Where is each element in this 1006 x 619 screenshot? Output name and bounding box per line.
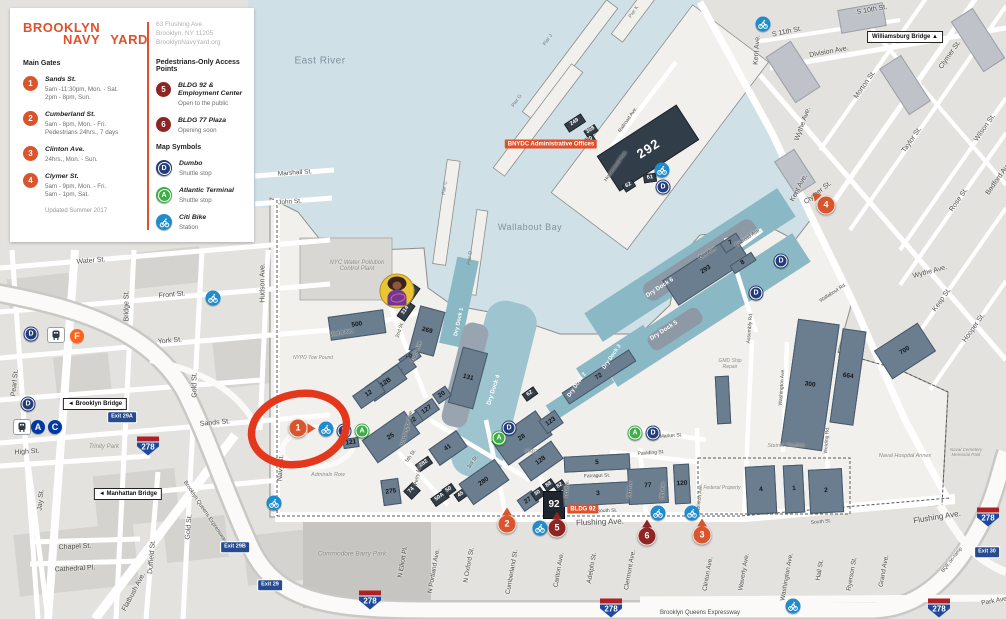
dumbo-shuttle-icon: D bbox=[337, 424, 352, 439]
area-label: GMD Ship Repair bbox=[718, 358, 741, 370]
gate-marker-6: 6 bbox=[638, 527, 657, 546]
gate-1-hours-2: 2pm - 8pm, Sun. bbox=[45, 94, 91, 101]
citibike-icon bbox=[267, 496, 282, 511]
gate-4-badge: 4 bbox=[23, 173, 38, 188]
access-5-name2: Employment Center bbox=[178, 90, 242, 97]
area-label: Steiner Studios bbox=[767, 443, 804, 449]
building-1: 1 bbox=[783, 465, 805, 514]
citibike-icon bbox=[206, 291, 221, 306]
gate-1-hours-1: 5am -11:30pm, Mon. - Sat. bbox=[45, 86, 118, 93]
address-line2: Brooklyn, NY 11205 bbox=[156, 29, 250, 38]
symbol-row-dumbo: D Dumbo Shuttle stop bbox=[156, 160, 250, 178]
building-label-74: 74 bbox=[408, 487, 416, 495]
area-label: GMC bbox=[525, 449, 538, 455]
water-label: Wallabout Bay bbox=[498, 222, 562, 232]
exit-sign: Exit 29 bbox=[257, 579, 283, 591]
building-label-249: 249 bbox=[570, 118, 581, 128]
building-label-275: 275 bbox=[385, 488, 397, 496]
dumbo-shuttle-icon: D bbox=[156, 160, 172, 176]
street-label: Bridge St. bbox=[124, 291, 131, 322]
access-5-badge: 5 bbox=[156, 82, 171, 97]
building-label-280: 280 bbox=[478, 476, 491, 488]
building-label-12: 12 bbox=[364, 389, 374, 398]
water-label: East River bbox=[294, 56, 345, 67]
exit-sign: Exit 29B bbox=[220, 541, 250, 553]
gate-3-hours-1: 24hrs., Mon. - Sun. bbox=[45, 156, 98, 163]
logo-line3: YARD bbox=[110, 34, 148, 46]
bridge-sign: Williamsburg Bridge ▲ bbox=[867, 31, 943, 43]
building-4: 4 bbox=[745, 465, 777, 515]
main-gates-title: Main Gates bbox=[23, 60, 141, 67]
access-6-desc: Opening soon bbox=[178, 127, 226, 135]
symbol-citibike-name: Citi Bike bbox=[179, 214, 206, 222]
building-label-293: 293 bbox=[700, 264, 713, 275]
ped-access-row-6: 6 BLDG 77 Plaza Opening soon bbox=[156, 117, 250, 135]
area-label: Naval Hospital Annex bbox=[879, 453, 931, 459]
building-label-292: 292 bbox=[634, 136, 662, 160]
building-label-30: 30 bbox=[534, 490, 542, 498]
building-120: 120 bbox=[673, 464, 691, 505]
building-label-8: 8 bbox=[740, 259, 747, 266]
building-3: 3 bbox=[562, 481, 633, 507]
building-92: 92 bbox=[543, 491, 565, 519]
atlantic-terminal-icon: A bbox=[628, 426, 643, 441]
symbol-atlantic-name: Atlantic Terminal bbox=[179, 187, 234, 195]
symbol-dumbo-name: Dumbo bbox=[179, 160, 212, 168]
bnydc-offices-callout: BNYDC Administrative Offices bbox=[505, 140, 597, 149]
street-label: South St. bbox=[597, 508, 618, 515]
building-label-27: 27 bbox=[523, 496, 533, 505]
building-275: 275 bbox=[380, 478, 401, 506]
area-label: Admirals Row bbox=[311, 472, 345, 478]
gate-legend-row-2: 2 Cumberland St. 5am - 8pm, Mon. - Fri.P… bbox=[23, 111, 141, 137]
citibike-icon bbox=[685, 506, 700, 521]
building-label-50: 50 bbox=[445, 486, 453, 494]
access-6-badge: 6 bbox=[156, 117, 171, 132]
gate-3-badge: 3 bbox=[23, 146, 38, 161]
legend-divider bbox=[147, 22, 149, 230]
website: BrooklynNavyYard.org bbox=[156, 38, 250, 47]
train-station-icon bbox=[13, 419, 31, 435]
building-label-120: 120 bbox=[676, 480, 687, 487]
gate-marker-1: 1 bbox=[289, 419, 308, 438]
citibike-icon bbox=[533, 521, 548, 536]
building-label-62: 62 bbox=[526, 390, 534, 398]
building-label-127: 127 bbox=[421, 404, 434, 416]
city-block bbox=[715, 376, 731, 425]
dumbo-shuttle-icon: D bbox=[774, 254, 789, 269]
gate-marker-2: 2 bbox=[498, 515, 517, 534]
citibike-icon bbox=[756, 17, 771, 32]
gate-3-name: Clinton Ave. bbox=[45, 146, 98, 154]
exit-sign: Exit 29A bbox=[107, 411, 137, 423]
street-label: Brooklyn Queens Expressway bbox=[660, 610, 740, 616]
street-label: Gold St. bbox=[192, 372, 199, 397]
badge-face bbox=[393, 282, 402, 290]
building-label-700: 700 bbox=[899, 345, 912, 356]
gate-4-name: Clymer St. bbox=[45, 173, 106, 181]
subway-a-icon: A bbox=[31, 420, 45, 434]
access-5-desc: Open to the public bbox=[178, 100, 242, 108]
dumbo-shuttle-icon: D bbox=[749, 286, 764, 301]
citibike-icon bbox=[786, 599, 801, 614]
area-label: NYC Water Pollution Control Plant bbox=[330, 260, 385, 272]
building-label-77: 77 bbox=[644, 483, 652, 490]
area-label: NYPD Tow Pound bbox=[293, 355, 333, 361]
pedestrian-access-title: Pedestrians-Only Access Points bbox=[156, 59, 250, 73]
building-label-5: 5 bbox=[595, 460, 599, 467]
brooklyn-navy-yard-logo: BROOKLYNNAVY YARD bbox=[23, 20, 141, 46]
building-label-72: 72 bbox=[594, 372, 604, 381]
bridge-sign: ◄ Brooklyn Bridge bbox=[63, 398, 127, 410]
building-label-41: 41 bbox=[443, 443, 453, 452]
updated-note: Updated Summer 2017 bbox=[45, 208, 141, 214]
ped-access-row-5: 5 BLDG 92 &Employment Center Open to the… bbox=[156, 82, 250, 108]
access-5-name: BLDG 92 & bbox=[178, 82, 214, 89]
building-label-269: 269 bbox=[421, 326, 433, 335]
symbol-dumbo-desc: Shuttle stop bbox=[179, 170, 212, 178]
gate-4-hours-1: 5am - 9pm, Mon. - Fri. bbox=[45, 183, 106, 190]
dumbo-shuttle-icon: D bbox=[646, 426, 661, 441]
building-label-4: 4 bbox=[759, 487, 763, 494]
gate-legend-row-1: 1 Sands St. 5am -11:30pm, Mon. - Sat.2pm… bbox=[23, 76, 141, 102]
citibike-icon bbox=[655, 163, 670, 178]
building-2: 2 bbox=[808, 468, 844, 514]
building-label-28: 28 bbox=[517, 433, 527, 442]
building-label-131: 131 bbox=[462, 373, 474, 382]
address-line1: 63 Flushing Ave bbox=[156, 20, 250, 29]
building-label-92: 92 bbox=[548, 500, 559, 510]
symbol-citibike-desc: Station bbox=[179, 224, 206, 232]
gate-4-hours-2: 5am - 1pm, Sat. bbox=[45, 191, 89, 198]
building-label-3: 3 bbox=[596, 491, 600, 498]
building-label-128: 128 bbox=[535, 455, 548, 467]
area-label: Commodore Barry Park bbox=[318, 551, 386, 558]
building-label-2: 2 bbox=[824, 488, 828, 495]
building-label-300: 300 bbox=[804, 381, 816, 389]
gate-1-badge: 1 bbox=[23, 76, 38, 91]
cartoon-lady-badge bbox=[380, 274, 415, 309]
exit-sign: Exit 30 bbox=[974, 546, 1000, 558]
dumbo-shuttle-icon: D bbox=[656, 180, 671, 195]
citibike-icon bbox=[651, 506, 666, 521]
bldg-92-callout: BLDG 92 bbox=[567, 505, 598, 514]
gate-2-hours-2: Pedestrians 24hrs., 7 days bbox=[45, 129, 118, 136]
gate-marker-4: 4 bbox=[817, 196, 836, 215]
atlantic-terminal-icon: A bbox=[156, 187, 172, 203]
gate-legend-row-4: 4 Clymer St. 5am - 9pm, Mon. - Fri.5am -… bbox=[23, 173, 141, 199]
building-label-25: 25 bbox=[386, 432, 396, 441]
symbol-atlantic-desc: Shuttle stop bbox=[179, 197, 234, 205]
street-label: Farragut St. bbox=[584, 473, 611, 480]
symbol-row-citibike: Citi Bike Station bbox=[156, 214, 250, 232]
area-label: Naval Cemetery Memorial Park bbox=[950, 447, 982, 457]
gate-2-hours-1: 5am - 8pm, Mon. - Fri. bbox=[45, 121, 106, 128]
dumbo-shuttle-icon: D bbox=[502, 421, 517, 436]
gate-marker-3: 3 bbox=[693, 526, 712, 545]
area-label: Federal Property bbox=[703, 485, 740, 491]
gate-2-badge: 2 bbox=[23, 111, 38, 126]
access-6-name: BLDG 77 Plaza bbox=[178, 117, 226, 125]
atlantic-terminal-icon: A bbox=[355, 424, 370, 439]
dumbo-shuttle-icon: D bbox=[24, 327, 39, 342]
building-label-20: 20 bbox=[437, 390, 447, 399]
gate-marker-5: 5 bbox=[548, 519, 567, 538]
street-label: Hudson Ave. bbox=[260, 263, 267, 303]
dumbo-shuttle-icon: D bbox=[21, 397, 36, 412]
subway-c-icon: C bbox=[48, 420, 62, 434]
building-label-121: 121 bbox=[345, 439, 357, 447]
legend-panel: BROOKLYNNAVY YARD Main Gates 1 Sands St.… bbox=[10, 8, 254, 242]
logo-line2: NAVY bbox=[23, 34, 100, 46]
building-label-1: 1 bbox=[792, 486, 796, 493]
brooklyn-navy-yard-map: BROOKLYNNAVY YARD Main Gates 1 Sands St.… bbox=[0, 0, 1006, 619]
building-label-123: 123 bbox=[545, 416, 558, 428]
area-label: Trinity Park bbox=[89, 444, 119, 450]
street-label: Flushing Ave. bbox=[576, 517, 624, 528]
building-label-664: 664 bbox=[842, 373, 854, 381]
citibike-icon bbox=[319, 422, 334, 437]
gate-legend-row-3: 3 Clinton Ave. 24hrs., Mon. - Sun. bbox=[23, 146, 141, 164]
gate-2-name: Cumberland St. bbox=[45, 111, 118, 119]
subway-f-icon: F bbox=[70, 329, 84, 343]
citibike-icon bbox=[156, 214, 172, 230]
building-label-61: 61 bbox=[647, 175, 654, 181]
map-symbols-title: Map Symbols bbox=[156, 144, 250, 151]
symbol-row-atlantic: A Atlantic Terminal Shuttle stop bbox=[156, 187, 250, 205]
gate-1-name: Sands St. bbox=[45, 76, 118, 84]
train-station-icon bbox=[47, 327, 65, 343]
building-label-62: 62 bbox=[625, 182, 633, 190]
bridge-sign: ◄ Manhattan Bridge bbox=[94, 488, 162, 500]
